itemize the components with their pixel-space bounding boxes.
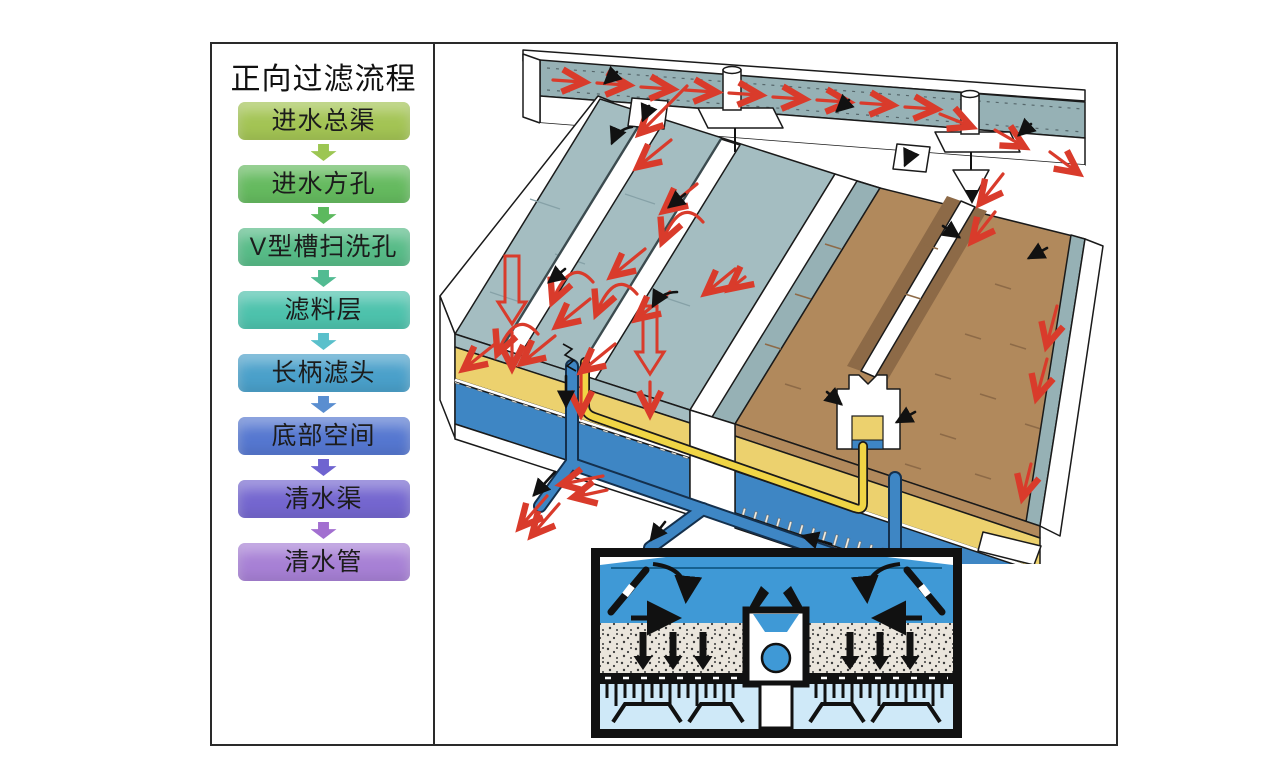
flow-step: 清水渠	[238, 480, 410, 543]
flow-step: 清水管	[238, 543, 410, 581]
step-down-arrow-icon	[311, 333, 337, 350]
diagram-panel	[433, 42, 1118, 746]
flow-step: 底部空间	[238, 417, 410, 480]
step-down-arrow-icon	[311, 459, 337, 476]
step-down-arrow-icon	[311, 522, 337, 539]
flowchart-steps: 进水总渠 进水方孔 V型槽扫洗孔 滤料层 长柄滤头 底部空间	[212, 102, 435, 581]
flow-step: 滤料层	[238, 291, 410, 354]
flow-step-box: V型槽扫洗孔	[238, 228, 410, 266]
flow-step-box: 底部空间	[238, 417, 410, 455]
flow-step: V型槽扫洗孔	[238, 228, 410, 291]
filter-cross-section	[591, 548, 962, 738]
flow-step-box: 清水渠	[238, 480, 410, 518]
flowchart-panel: 正向过滤流程 进水总渠 进水方孔 V型槽扫洗孔 滤料层 长柄滤头	[210, 42, 435, 746]
filter-3d-illustration	[435, 44, 1116, 564]
flow-step: 进水方孔	[238, 165, 410, 228]
flow-step-box: 长柄滤头	[238, 354, 410, 392]
flow-step-box: 滤料层	[238, 291, 410, 329]
flow-step-box: 进水总渠	[238, 102, 410, 140]
flowchart-title: 正向过滤流程	[212, 54, 435, 98]
screenshot-root: 正向过滤流程 进水总渠 进水方孔 V型槽扫洗孔 滤料层 长柄滤头	[0, 0, 1280, 783]
flow-step: 长柄滤头	[238, 354, 410, 417]
step-down-arrow-icon	[311, 144, 337, 161]
flow-step: 进水总渠	[238, 102, 410, 165]
flow-step-box: 进水方孔	[238, 165, 410, 203]
flow-step-box: 清水管	[238, 543, 410, 581]
step-down-arrow-icon	[311, 270, 337, 287]
step-down-arrow-icon	[311, 207, 337, 224]
step-down-arrow-icon	[311, 396, 337, 413]
